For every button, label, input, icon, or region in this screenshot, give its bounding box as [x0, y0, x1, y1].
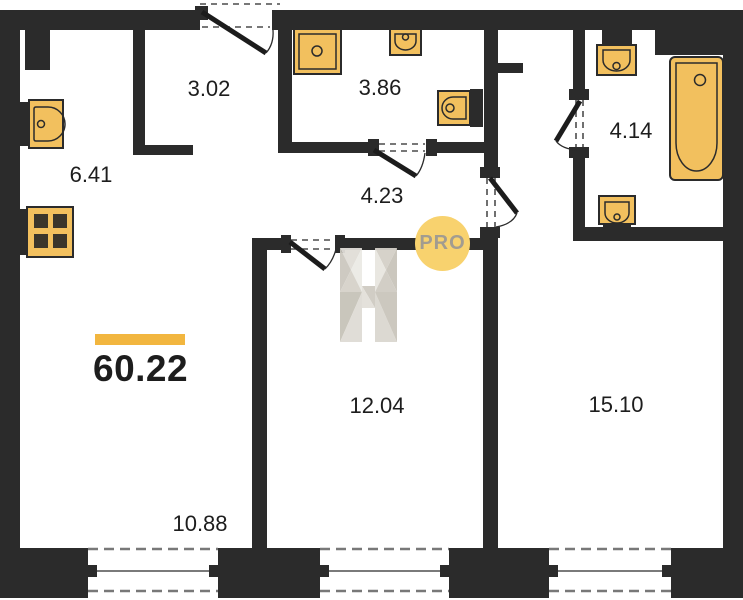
window-bedroom-large	[547, 549, 673, 591]
room-area-bathroom-large: 4.14	[610, 118, 653, 144]
door-bathroom-small	[374, 144, 425, 176]
total-area-value: 60.22	[93, 348, 188, 390]
door-bathroom-large	[556, 100, 583, 150]
toilet-small-icon	[438, 89, 483, 127]
total-area-underline	[95, 334, 185, 345]
room-area-bedroom-large: 15.10	[588, 392, 643, 418]
washbasin-large-icon	[599, 196, 635, 230]
watermark-monogram	[340, 248, 397, 342]
bathtub-icon	[670, 57, 723, 180]
door-entry	[200, 4, 280, 53]
door-bedroom-mid	[290, 240, 336, 269]
room-area-living-room: 10.88	[172, 511, 227, 537]
room-area-bedroom-mid: 12.04	[349, 393, 404, 419]
room-area-kitchen: 6.41	[70, 162, 113, 188]
washbasin-small-icon	[390, 29, 421, 55]
pro-badge: PRO	[415, 216, 470, 271]
door-hall	[487, 178, 517, 227]
shower-icon	[294, 29, 341, 74]
kitchen-sink-icon	[20, 100, 65, 148]
room-area-entry-hall: 3.02	[188, 76, 231, 102]
floor-plan: PRO 3.02 3.86 4.14 6.41 4.23 12.04 15.10…	[0, 0, 743, 600]
room-area-corridor: 4.23	[361, 183, 404, 209]
window-bedroom-mid	[318, 549, 451, 591]
toilet-large-icon	[597, 30, 636, 75]
window-living-room	[86, 549, 220, 591]
room-area-bathroom-small: 3.86	[359, 75, 402, 101]
stove-icon	[20, 207, 73, 257]
